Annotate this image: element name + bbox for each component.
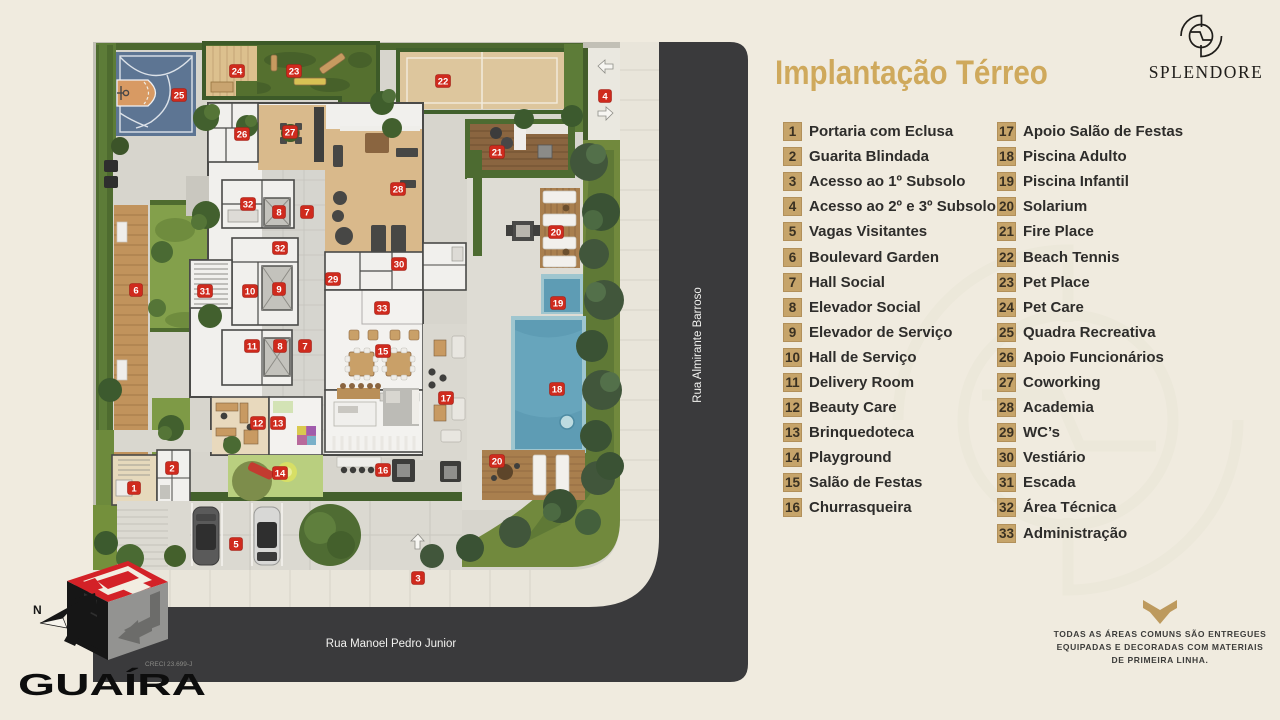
svg-text:25: 25 xyxy=(174,90,185,101)
svg-text:SPLENDORE: SPLENDORE xyxy=(1149,62,1264,82)
svg-text:14: 14 xyxy=(275,468,286,479)
svg-text:6: 6 xyxy=(133,285,138,296)
svg-text:2: 2 xyxy=(169,463,174,474)
svg-text:29: 29 xyxy=(328,274,339,285)
svg-text:28: 28 xyxy=(393,184,404,195)
svg-text:Rua Manoel Pedro Junior: Rua Manoel Pedro Junior xyxy=(326,638,457,650)
svg-text:22: 22 xyxy=(438,76,449,87)
svg-text:8: 8 xyxy=(276,207,281,218)
svg-text:1: 1 xyxy=(131,483,137,494)
svg-text:31: 31 xyxy=(200,286,211,297)
svg-text:21: 21 xyxy=(492,147,503,158)
svg-text:10: 10 xyxy=(245,286,256,297)
svg-text:GUAÍRA: GUAÍRA xyxy=(18,667,206,702)
svg-text:15: 15 xyxy=(378,346,389,357)
svg-text:Rua Almirante Barroso: Rua Almirante Barroso xyxy=(692,287,704,403)
svg-text:7: 7 xyxy=(304,207,309,218)
svg-text:18: 18 xyxy=(552,384,563,395)
svg-text:17: 17 xyxy=(441,393,452,404)
svg-text:20: 20 xyxy=(551,227,562,238)
svg-text:16: 16 xyxy=(378,465,389,476)
svg-text:13: 13 xyxy=(273,418,284,429)
svg-text:24: 24 xyxy=(232,66,243,77)
svg-text:20: 20 xyxy=(492,456,503,467)
svg-text:33: 33 xyxy=(377,303,388,314)
svg-text:9: 9 xyxy=(276,284,281,295)
svg-text:3: 3 xyxy=(415,573,420,584)
svg-text:19: 19 xyxy=(553,298,564,309)
svg-text:11: 11 xyxy=(247,341,258,352)
svg-text:5: 5 xyxy=(233,539,239,550)
svg-text:8: 8 xyxy=(277,341,282,352)
svg-text:7: 7 xyxy=(302,341,307,352)
svg-text:12: 12 xyxy=(253,418,264,429)
svg-text:23: 23 xyxy=(289,66,300,77)
svg-text:27: 27 xyxy=(285,127,296,138)
svg-text:26: 26 xyxy=(237,129,248,140)
svg-text:4: 4 xyxy=(602,91,608,102)
svg-text:32: 32 xyxy=(275,243,286,254)
svg-text:30: 30 xyxy=(394,259,405,270)
svg-text:N: N xyxy=(33,603,42,617)
svg-text:32: 32 xyxy=(243,199,254,210)
